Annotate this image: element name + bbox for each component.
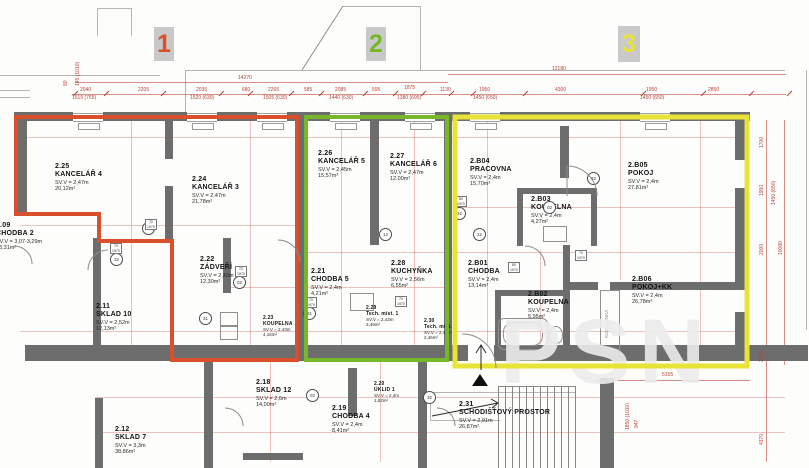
room-label: 2.31 SCHODIŠŤOVÝ PROSTOR SV.V = 2,91m 26…	[459, 401, 550, 431]
room-name: POKOJ	[628, 170, 659, 178]
room-height: SV.V = 2,4m	[311, 285, 349, 292]
room-height: SV.V = 2,47m	[390, 170, 437, 177]
room-id: 2.21	[311, 268, 349, 276]
dimension-sublabel: 1450 (650)	[772, 181, 777, 205]
door-height: 1970	[457, 202, 465, 207]
room-area: 27,81m²	[628, 185, 659, 192]
wall-segment	[243, 453, 303, 460]
room-area: 20,12m²	[55, 186, 102, 193]
room-area: 12,30m²	[200, 279, 234, 286]
dimension-sublabel: 1450 (650)	[640, 96, 664, 101]
ref-circle: 31	[199, 312, 212, 325]
sink	[543, 226, 567, 242]
room-label: 2.12 SKLAD 7 SV.V = 3,3m 38,86m²	[115, 426, 146, 456]
room-height: SV.V = 2,4m	[531, 213, 572, 220]
room-area: 4,27m²	[531, 219, 572, 226]
room-id: 2.B06	[632, 276, 672, 284]
room-label: 2.26 KANCELÁŘ 5 SV.V = 2,45m 15,57m²	[318, 150, 365, 180]
ref-circle: 32	[423, 391, 436, 404]
dimension-label: 2040	[80, 88, 91, 93]
floor-plan-canvas: 14270 12180 2040 2205 2035 680 2265 585 …	[0, 0, 809, 468]
door-tag: 70 1970	[395, 296, 407, 307]
door-tag: 80 1970	[508, 262, 520, 273]
ref-circle: 32	[453, 207, 466, 220]
room-height: SV.V = 2,47m	[192, 193, 239, 200]
room-label: 2.18 SKLAD 12 SV.V = 2,6m 14,00m²	[256, 379, 291, 409]
outline-line	[97, 8, 98, 36]
dimension-line	[270, 362, 271, 462]
zone3-badge: 3	[618, 26, 640, 62]
dimension-label: 2085	[335, 88, 346, 93]
room-area: 15,57m²	[318, 173, 365, 180]
dimension-label: 12180	[552, 67, 566, 72]
dimension-label: 1130	[440, 88, 451, 93]
room-name: CHODBA 5	[311, 276, 349, 284]
dimension-label: 1950	[760, 185, 765, 196]
wall-segment	[735, 118, 745, 160]
roof-diagonal	[302, 6, 343, 70]
room-area: 8,41m²	[332, 428, 370, 435]
wall-segment	[217, 112, 257, 121]
outline-line	[0, 90, 30, 91]
room-label: 2.19 CHODBA 4 SV.V = 2,4m 8,41m²	[332, 405, 370, 435]
dimension-label: 1950	[646, 88, 657, 93]
dimension-sublabel: 1520 (630)	[190, 96, 214, 101]
radiator	[262, 123, 284, 130]
room-id: 2.09	[0, 222, 42, 230]
dimension-label: 1950	[479, 88, 490, 93]
ref-circle: 32	[587, 172, 600, 185]
dimension-sublabel: 1440 (630)	[329, 96, 353, 101]
dimension-line	[72, 94, 786, 95]
room-height: SV.V = 3,3m	[115, 443, 146, 450]
room-area: 12,13m²	[96, 326, 131, 333]
dimension-line	[766, 120, 767, 462]
window	[405, 113, 435, 122]
room-id: 2.B02	[528, 291, 569, 299]
door-height: 1970	[577, 256, 585, 261]
room-name: KUCHYŇKA	[391, 268, 433, 276]
room-height: SV.V = 2,47m	[55, 180, 102, 187]
door-height: 1970	[397, 302, 405, 307]
room-height: SV.V = 2,4m	[470, 175, 512, 182]
wall-segment	[204, 361, 213, 468]
dimension-label: 14270	[238, 76, 252, 81]
door-tag: 70 1970	[235, 266, 247, 277]
wall-segment	[360, 112, 405, 121]
window	[187, 113, 217, 122]
wall-segment	[95, 398, 103, 468]
room-area: 15,70m²	[470, 181, 512, 188]
window	[470, 113, 500, 122]
door-height: 1970	[510, 268, 518, 273]
outline-line	[806, 70, 807, 330]
ref-circle: 02	[543, 201, 556, 214]
room-id: 2.12	[115, 426, 146, 434]
room-label: 2.27 KANCELÁŘ 6 SV.V = 2,47m 12,00m²	[390, 153, 437, 183]
dimension-line	[784, 120, 785, 365]
room-name: SKLAD 7	[115, 434, 146, 442]
dimension-label: 680	[242, 88, 250, 93]
dimension-line	[250, 118, 251, 345]
room-name: POKOJ+KK	[632, 284, 672, 292]
dimension-label: 2000	[760, 244, 765, 255]
dimension-line	[75, 82, 448, 83]
room-area: 1,52m²	[374, 398, 399, 403]
outline-line	[420, 6, 421, 70]
room-name: KANCELÁŘ 3	[192, 184, 239, 192]
room-label: 2.21 CHODBA 5 SV.V = 2,4m 4,21m²	[311, 268, 349, 298]
radiator	[78, 123, 100, 130]
dimension-label: 10080	[779, 241, 784, 255]
wall-segment	[418, 361, 427, 468]
room-id: 2.B05	[628, 162, 659, 170]
room-label: 2.11 SKLAD 10 SV.V = 2,52m 12,13m²	[96, 303, 131, 333]
dimension-line	[487, 120, 488, 345]
door-tag: 70 1970	[575, 250, 587, 261]
window	[330, 113, 360, 122]
room-label: 2.28 KUCHYŇKA SV.V = 2,56m 6,55m²	[391, 260, 433, 290]
washer	[220, 312, 238, 326]
room-area: 6,55m²	[391, 283, 433, 290]
room-label: 2.09 CHODBA 2 SV.V = 3,07-3,29m 23,31m²	[0, 222, 42, 252]
door-opening	[468, 345, 494, 361]
outline-line	[97, 8, 132, 9]
ref-circle: 02	[233, 276, 246, 289]
dimension-label: 145 (1010)	[76, 62, 81, 86]
room-height: SV.V = 3,07-3,29m	[0, 239, 42, 246]
outline-line	[131, 8, 132, 36]
room-label: 2.23 KOUPELNA SV.V = 2,43m 4,16m²	[263, 315, 293, 338]
room-id: 2.B04	[470, 158, 512, 166]
room-height: SV.V = 2,4m	[628, 179, 659, 186]
room-id: 2.18	[256, 379, 291, 387]
room-height: SV.V = 2,52m	[96, 320, 131, 327]
wall-segment	[735, 188, 745, 282]
wall-segment	[287, 112, 330, 121]
dimension-label: 80	[64, 80, 69, 86]
room-area: 13,14m²	[468, 283, 500, 290]
room-id: 2.11	[96, 303, 131, 311]
dimension-label: 947	[635, 420, 640, 428]
wall-segment	[517, 188, 523, 246]
dimension-label: 2035	[196, 88, 207, 93]
dimension-label: 2265	[268, 88, 279, 93]
room-height: SV.V = 2,4m	[332, 422, 370, 429]
room-area: 12,00m²	[390, 176, 437, 183]
dimension-line	[20, 225, 300, 226]
outline-line	[343, 6, 421, 7]
wall-segment	[165, 186, 173, 240]
radiator	[475, 123, 497, 130]
door-arc	[437, 408, 455, 426]
room-name: SCHODIŠŤOVÝ PROSTOR	[459, 409, 550, 417]
wall-segment	[560, 126, 569, 178]
room-height: SV.V = 2,91m	[459, 418, 550, 425]
window	[257, 113, 287, 122]
room-height: SV.V = 2,4m	[632, 293, 672, 300]
ref-circle: 12	[379, 228, 392, 241]
dimension-line	[448, 74, 786, 75]
room-area: 14,00m²	[256, 402, 291, 409]
room-label: 2.B04 PRACOVNA SV.V = 2,4m 15,70m²	[470, 158, 512, 188]
dimension-line	[20, 137, 740, 138]
radiator	[192, 123, 214, 130]
zone1-outline	[16, 117, 297, 360]
room-label: 2.20 ÚKLID 1 SV.V = 2,4m 1,52m²	[374, 381, 399, 404]
wall-segment	[444, 112, 452, 347]
room-area: 2,46m²	[424, 335, 452, 340]
wall-segment	[165, 121, 173, 159]
outline-line	[185, 70, 186, 114]
wall-segment	[370, 118, 379, 245]
room-height: SV.V = 2,45m	[318, 167, 365, 174]
washer	[220, 326, 238, 340]
door-arc	[225, 408, 243, 426]
zone2-badge: 2	[366, 27, 386, 61]
room-area: 23,31m²	[0, 245, 42, 252]
door-arc	[525, 246, 545, 266]
dimension-line	[455, 207, 745, 208]
window	[640, 113, 670, 122]
window	[73, 113, 103, 122]
wall-segment	[517, 188, 597, 194]
dimension-line	[620, 120, 621, 280]
dimension-label: 4370	[760, 434, 765, 445]
wall-segment	[103, 112, 187, 121]
door-tag: 70 1970	[110, 243, 122, 254]
room-name: PRACOVNA	[470, 166, 512, 174]
room-area: 4,16m²	[263, 332, 293, 337]
dimension-label: 2080	[760, 351, 765, 362]
room-height: SV.V = 2,4m	[468, 277, 500, 284]
room-label: 2.30 Tech. míst. SV.V = 2,43m 2,46m²	[424, 318, 452, 341]
ref-circle: 32	[110, 253, 123, 266]
entrance-triangle-icon	[472, 374, 488, 386]
room-area: 38,86m²	[115, 449, 146, 456]
room-area: 3,46m²	[366, 322, 399, 327]
room-id: 2.B01	[468, 260, 500, 268]
wall-segment	[500, 112, 640, 121]
dimension-label: 1700	[760, 137, 765, 148]
room-id: 2.19	[332, 405, 370, 413]
door-height: 1970	[112, 249, 120, 254]
radiator	[335, 123, 357, 130]
room-label: 2.B05 POKOJ SV.V = 2,4m 27,81m²	[628, 162, 659, 192]
dimension-label: 1875	[404, 86, 415, 91]
door-tag: 70 1970	[305, 297, 317, 308]
psn-watermark: PSN	[500, 300, 713, 405]
dimension-label: 1850 (1010)	[626, 403, 631, 430]
room-name: CHODBA 2	[0, 230, 42, 238]
dimension-line	[300, 252, 745, 253]
dimension-line	[380, 362, 381, 462]
door-tag: 80 1970	[455, 196, 467, 207]
room-height: SV.V = 2,43m	[200, 273, 234, 280]
dimension-label: 595	[372, 88, 380, 93]
dimension-label: 2850	[708, 88, 719, 93]
room-label: 2.29 Tech. míst. 1 SV.V = 2,43m 3,46m²	[366, 305, 399, 328]
door-arc	[278, 240, 300, 262]
radiator	[410, 123, 432, 130]
room-label: 2.B01 CHODBA SV.V = 2,4m 13,14m²	[468, 260, 500, 290]
room-name: KANCELÁŘ 6	[390, 161, 437, 169]
dimension-label: 585	[304, 88, 312, 93]
room-height: SV.V = 2,56m	[391, 277, 433, 284]
outline-line	[185, 70, 785, 71]
door-height: 1970	[237, 272, 245, 277]
room-name: ZÁDVEŘÍ	[200, 264, 234, 272]
dimension-sublabel: 1515 (765)	[72, 96, 96, 101]
ref-circle: 22	[473, 228, 486, 241]
room-height: SV.V = 2,6m	[256, 396, 291, 403]
room-area: 21,78m²	[192, 199, 239, 206]
room-name: CHODBA	[468, 268, 500, 276]
room-label: 2.24 KANCELÁŘ 3 SV.V = 2,47m 21,78m²	[192, 176, 239, 206]
wall-segment	[591, 194, 597, 246]
dimension-sublabel: 1450 (650)	[473, 96, 497, 101]
room-name: SKLAD 10	[96, 311, 131, 319]
wall-segment	[435, 112, 470, 121]
room-name: CHODBA 4	[332, 413, 370, 421]
room-label: 2.25 KANCELÁŘ 4 SV.V = 2,47m 20,12m²	[55, 163, 102, 193]
room-area: 26,87m²	[459, 424, 550, 431]
ref-circle: 02	[306, 389, 319, 402]
room-name: SKLAD 12	[256, 387, 291, 395]
dimension-label: 2205	[138, 88, 149, 93]
dimension-sublabel: 1380 (695)	[397, 96, 421, 101]
zone1-badge: 1	[154, 27, 174, 61]
room-name: KANCELÁŘ 5	[318, 158, 365, 166]
outline-line	[0, 97, 30, 98]
wall-segment	[570, 282, 598, 290]
door-tag: 70 1970	[145, 219, 157, 230]
dimension-label: 4300	[555, 88, 566, 93]
door-height: 1970	[307, 303, 315, 308]
radiator	[645, 123, 667, 130]
dimension-sublabel: 1505 (630)	[263, 96, 287, 101]
room-name: KANCELÁŘ 4	[55, 171, 102, 179]
room-label: 2.22 ZÁDVEŘÍ SV.V = 2,43m 12,30m²	[200, 256, 234, 286]
dimension-line	[95, 432, 785, 433]
wall-segment	[610, 282, 745, 290]
ref-circle: 31	[303, 307, 316, 320]
door-height: 1970	[147, 225, 155, 230]
wall-segment	[18, 112, 27, 213]
wall-segment	[735, 312, 745, 360]
dimension-tick	[787, 91, 793, 97]
